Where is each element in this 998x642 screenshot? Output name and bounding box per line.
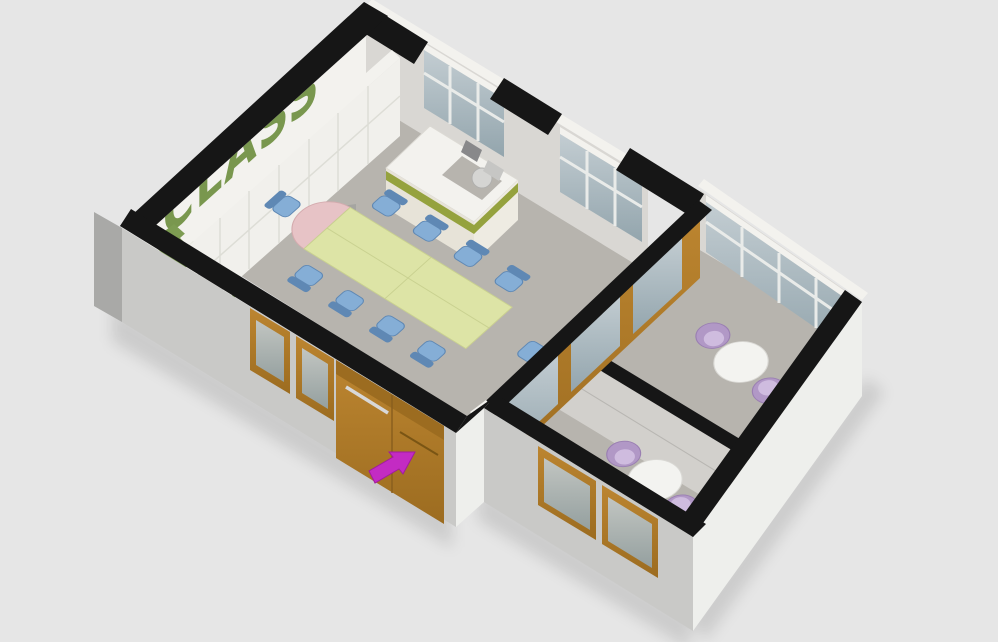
floorplan-svg: CLASS [0,0,998,642]
floorplan-render: CLASS [0,0,998,642]
outer-wall-left-sliver [94,212,122,322]
